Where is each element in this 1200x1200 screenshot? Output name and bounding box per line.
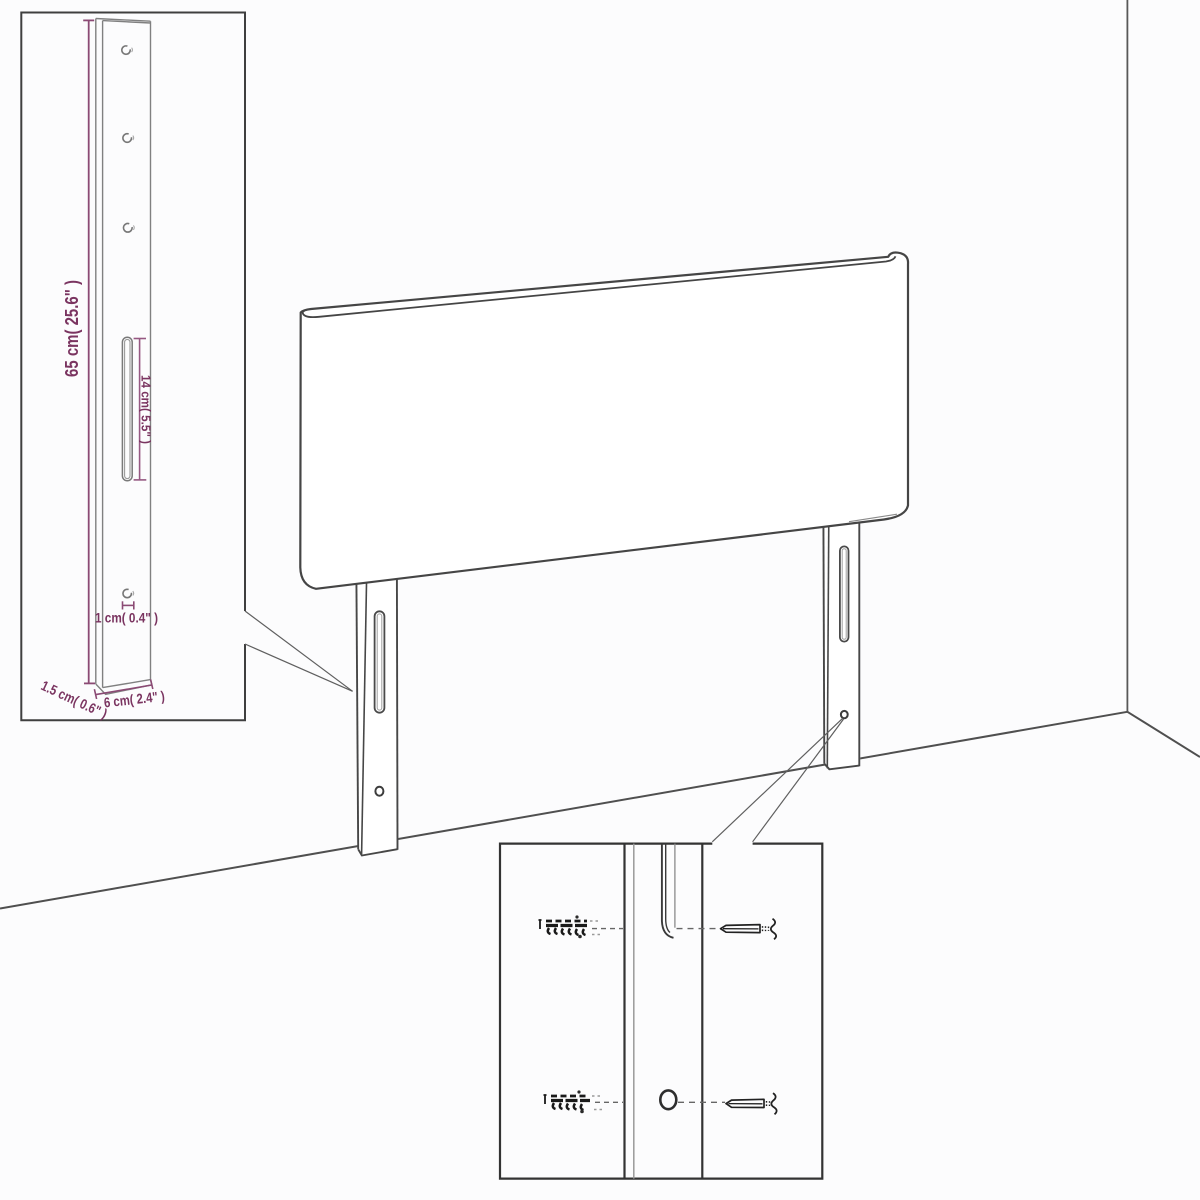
svg-text:14 cm( 5.5" ): 14 cm( 5.5" )	[139, 375, 154, 444]
svg-text:1.5 cm( 0.6" ): 1.5 cm( 0.6" )	[39, 677, 110, 722]
svg-text:1 cm( 0.4" ): 1 cm( 0.4" )	[95, 611, 158, 626]
svg-text:65 cm( 25.6" ): 65 cm( 25.6" )	[62, 280, 82, 377]
